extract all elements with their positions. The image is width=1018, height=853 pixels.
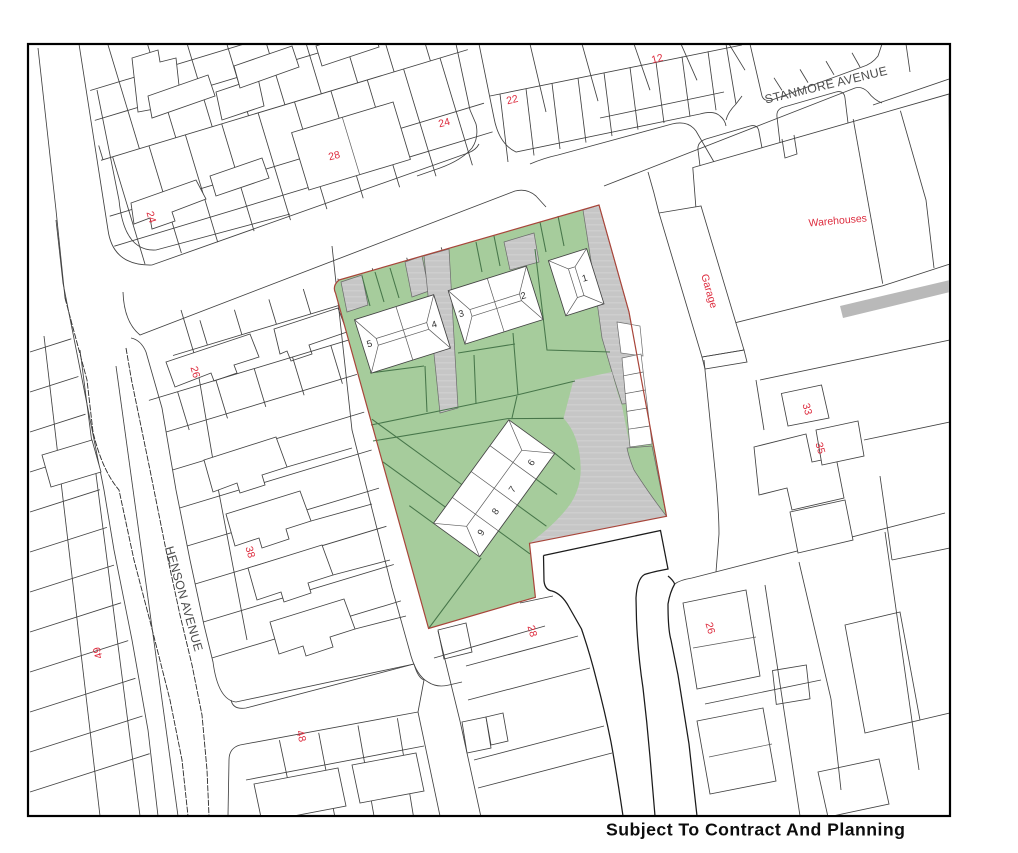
svg-text:Subject To Contract And Planni: Subject To Contract And Planning — [606, 820, 905, 840]
